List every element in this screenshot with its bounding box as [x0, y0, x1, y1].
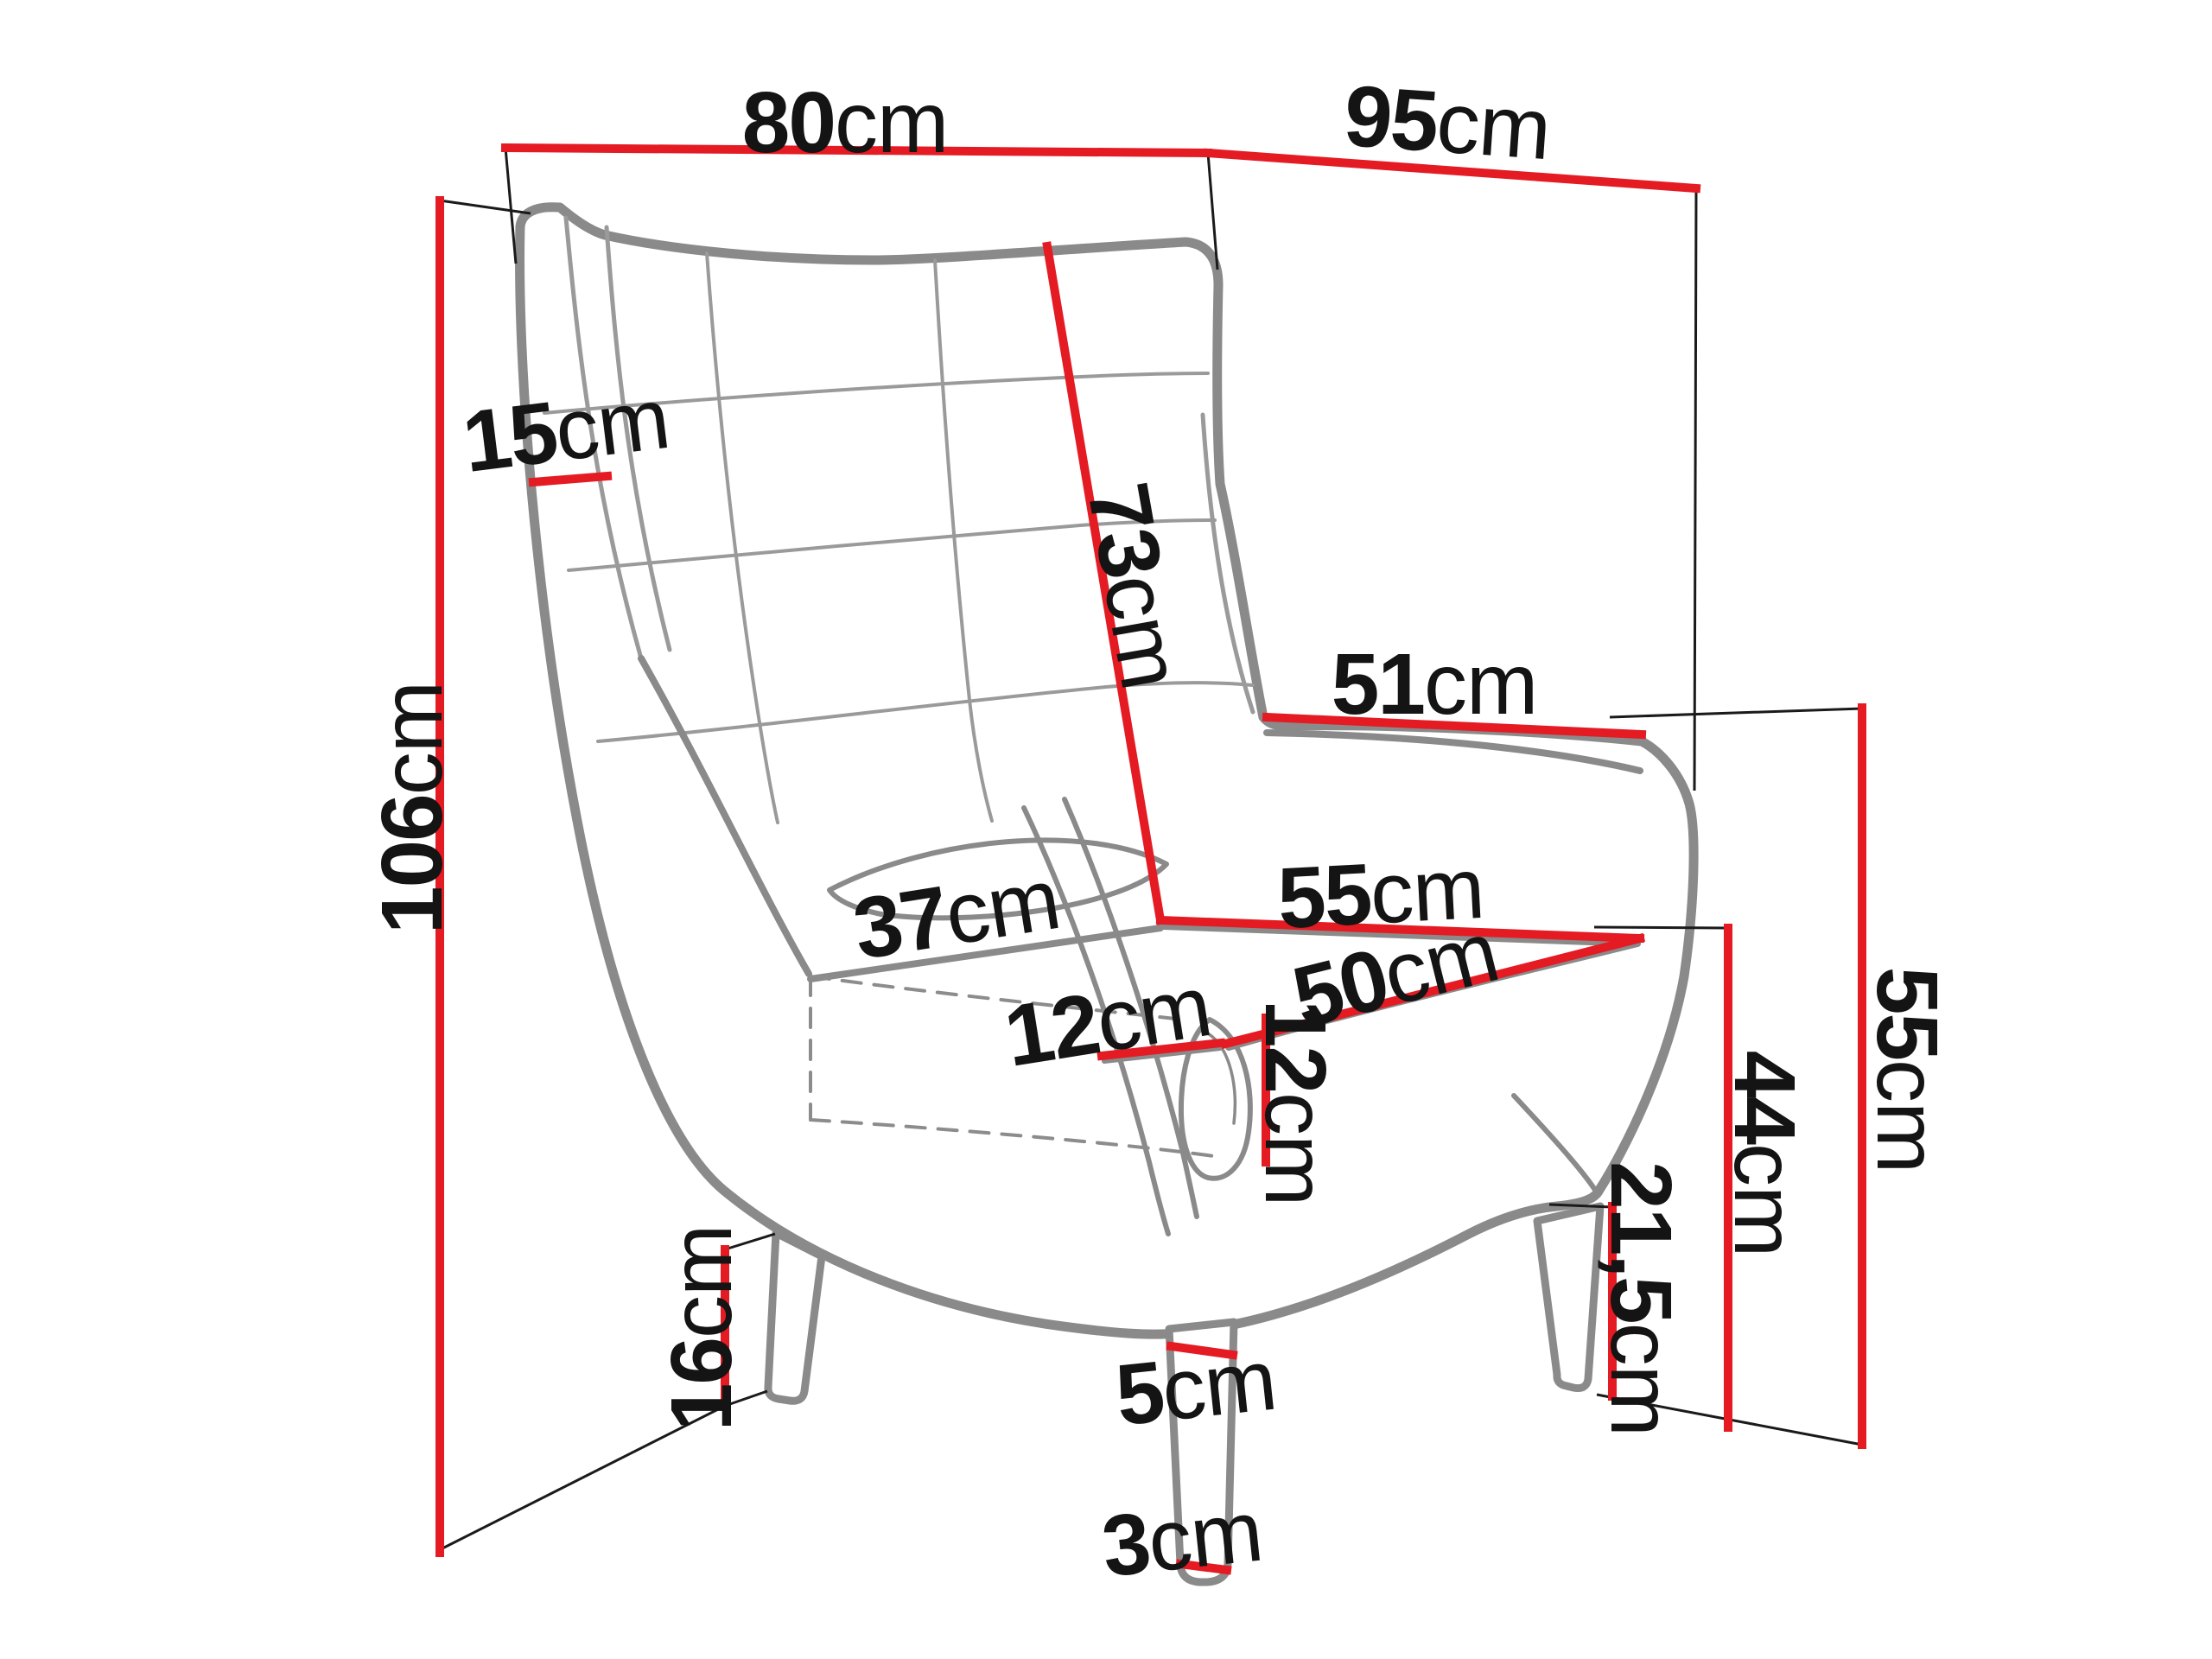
dim-label-back-width-80: 80cm	[742, 74, 949, 171]
ext-95-down	[1694, 188, 1696, 791]
ext-51-to-55	[1610, 709, 1862, 717]
ext-seat-to-44	[1594, 927, 1726, 928]
dim-label-depth-95: 95cm	[1341, 67, 1554, 178]
dim-label-clearance-215: 21,5cm	[1592, 1161, 1689, 1436]
dim-label-seatheight-44: 44cm	[1716, 1051, 1813, 1257]
dim-label-leg-3: 3cm	[1097, 1483, 1267, 1596]
chair-leg-back-left	[768, 1233, 822, 1401]
chair-leg-back-right	[1537, 1206, 1600, 1389]
dim-label-height-106: 106cm	[364, 682, 461, 934]
armchair-dimension-diagram: 80cm 95cm 106cm 15cm 73cm 51cm 55cm 50cm…	[0, 0, 2212, 1659]
ext-80-left	[505, 148, 516, 264]
dim-label-armrest-12v: 12cm	[1247, 1000, 1344, 1206]
dim-label-leg-5: 5cm	[1111, 1332, 1281, 1445]
dim-label-leg-16: 16cm	[653, 1225, 750, 1432]
dim-label-sideheight-55: 55cm	[1859, 967, 1955, 1173]
dim-label-backwidth-51: 51cm	[1332, 636, 1538, 733]
ext-106-top	[440, 200, 531, 213]
